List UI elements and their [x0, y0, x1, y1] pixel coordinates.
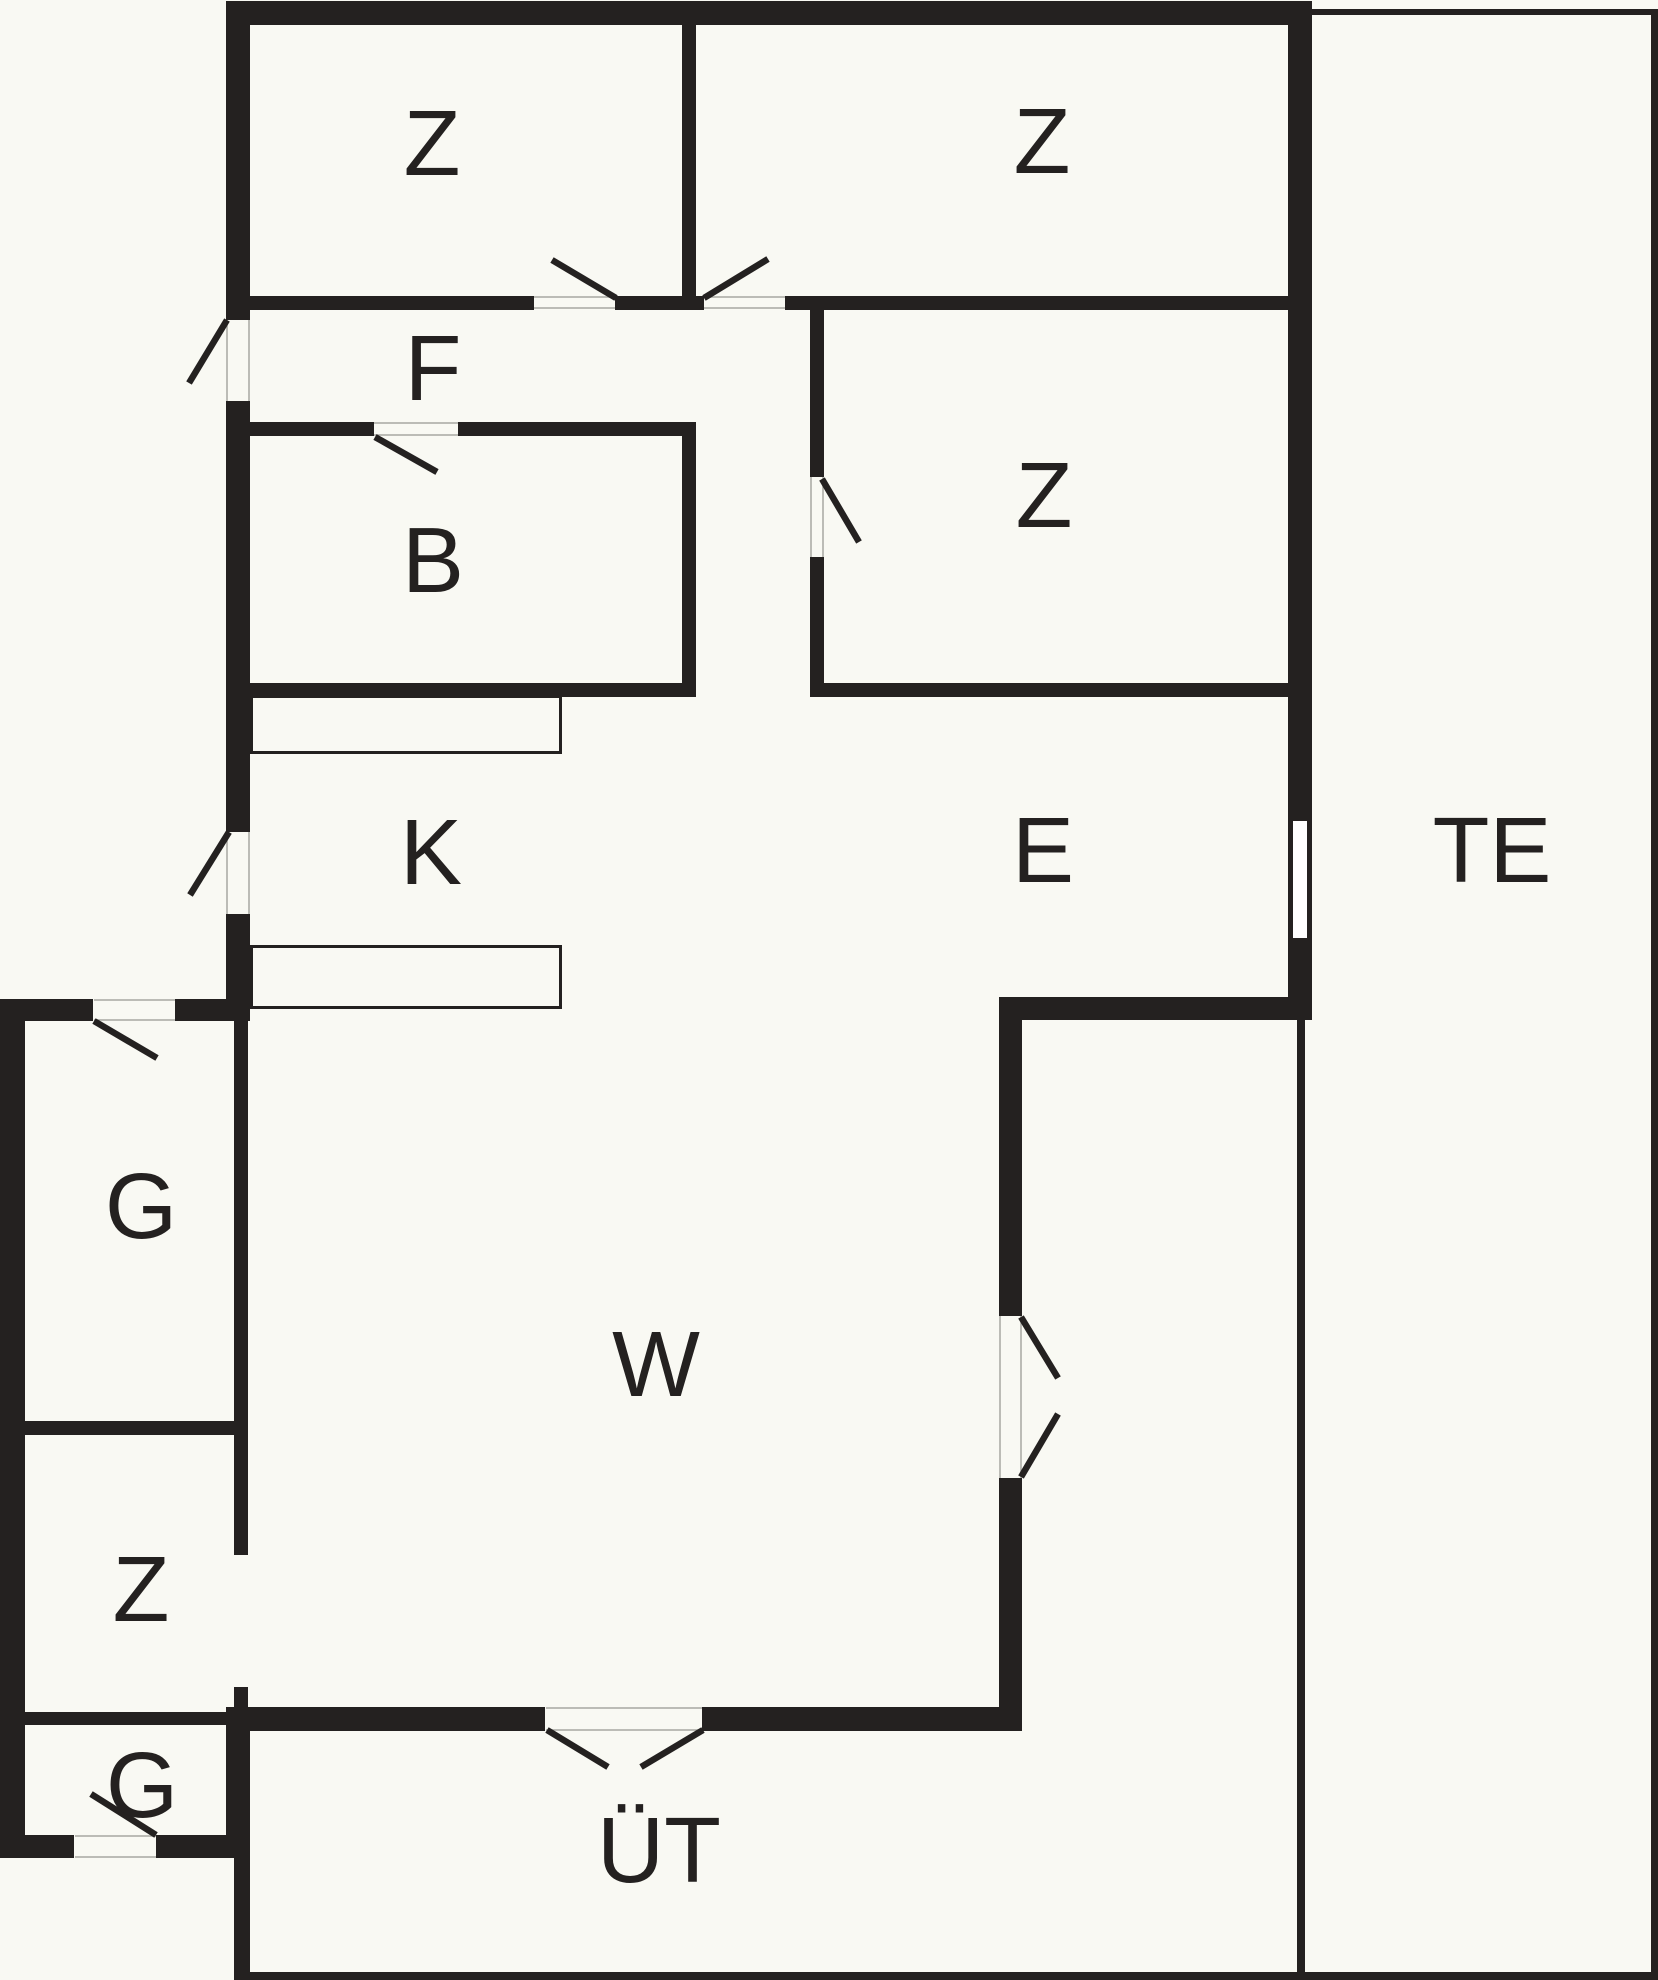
svg-text:G: G [105, 1154, 177, 1258]
svg-text:TE: TE [1433, 798, 1552, 902]
svg-text:E: E [1012, 798, 1074, 902]
svg-text:Z: Z [404, 91, 461, 195]
svg-text:Z: Z [1016, 443, 1073, 547]
svg-text:K: K [400, 800, 462, 904]
svg-text:B: B [402, 508, 464, 612]
svg-text:Z: Z [113, 1537, 170, 1641]
svg-text:ÜT: ÜT [597, 1798, 721, 1902]
svg-text:W: W [612, 1312, 700, 1416]
svg-text:F: F [405, 316, 462, 420]
svg-text:Z: Z [1014, 89, 1071, 193]
svg-text:G: G [106, 1733, 178, 1837]
